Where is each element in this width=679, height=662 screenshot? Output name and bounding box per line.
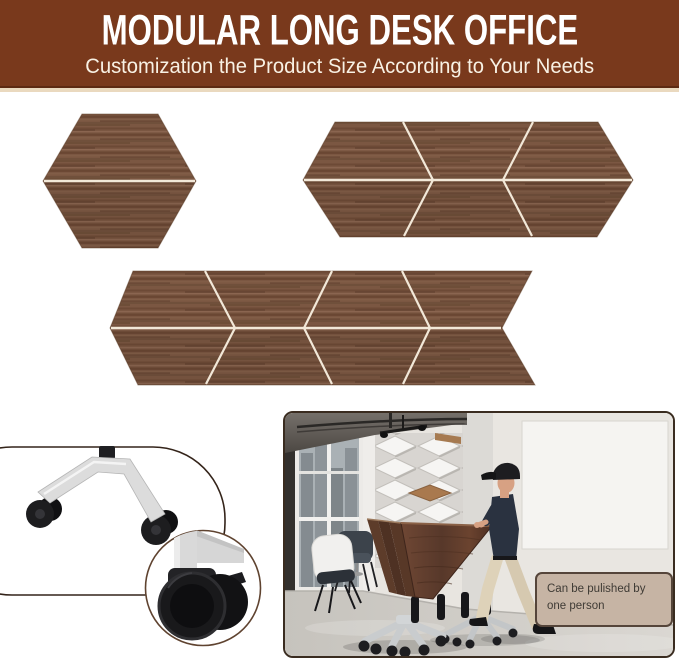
caster-detail-section [0, 410, 283, 662]
eight-module-desk-shape [110, 271, 535, 385]
desk-configurations-diagram [0, 92, 679, 410]
six-module-desk-shape [303, 122, 633, 237]
office-photo: Can be pulished by one person [283, 411, 675, 658]
leg-mount-cylinder [99, 446, 115, 459]
banner-divider [0, 88, 679, 92]
caster-closeup-circle [146, 530, 261, 646]
white-chair [311, 533, 356, 585]
banner-subtitle: Customization the Product Size According… [0, 54, 679, 79]
banner-title: MODULAR LONG DESK OFFICE [0, 7, 679, 51]
banner-header: MODULAR LONG DESK OFFICE Customization t… [0, 0, 679, 88]
caption-text: Can be pulished by one person [547, 583, 645, 612]
caption-label: Can be pulished by one person [535, 572, 673, 627]
polo-shirt [489, 494, 519, 560]
white-wall-panel [522, 421, 668, 549]
banner-title-text: MODULAR LONG DESK OFFICE [101, 7, 578, 55]
banner-subtitle-text: Customization the Product Size According… [85, 54, 594, 79]
hexagon-desk-shape [43, 114, 196, 248]
product-image-canvas: MODULAR LONG DESK OFFICE Customization t… [0, 0, 679, 662]
